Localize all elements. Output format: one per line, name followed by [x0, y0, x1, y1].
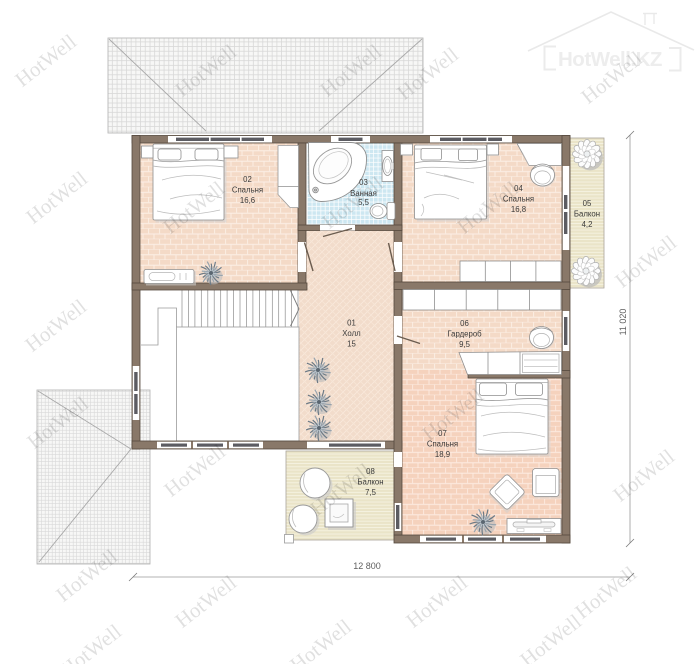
svg-text:11 020: 11 020 — [618, 309, 628, 336]
svg-text:Балкон: Балкон — [574, 209, 600, 218]
svg-text:15: 15 — [347, 339, 356, 348]
svg-text:01: 01 — [347, 318, 356, 327]
svg-text:12 800: 12 800 — [353, 561, 381, 571]
svg-text:02: 02 — [243, 175, 252, 184]
svg-text:05: 05 — [583, 199, 592, 208]
svg-text:16,6: 16,6 — [240, 196, 255, 205]
svg-text:16,8: 16,8 — [511, 205, 526, 214]
svg-text:Холл: Холл — [342, 329, 361, 338]
svg-text:4,2: 4,2 — [582, 220, 593, 229]
svg-text:06: 06 — [460, 319, 469, 328]
svg-text:7,5: 7,5 — [365, 488, 377, 497]
svg-text:9,5: 9,5 — [459, 340, 471, 349]
svg-text:Спальня: Спальня — [232, 185, 263, 194]
svg-text:Гардероб: Гардероб — [447, 329, 482, 338]
svg-text:18,9: 18,9 — [435, 450, 450, 459]
